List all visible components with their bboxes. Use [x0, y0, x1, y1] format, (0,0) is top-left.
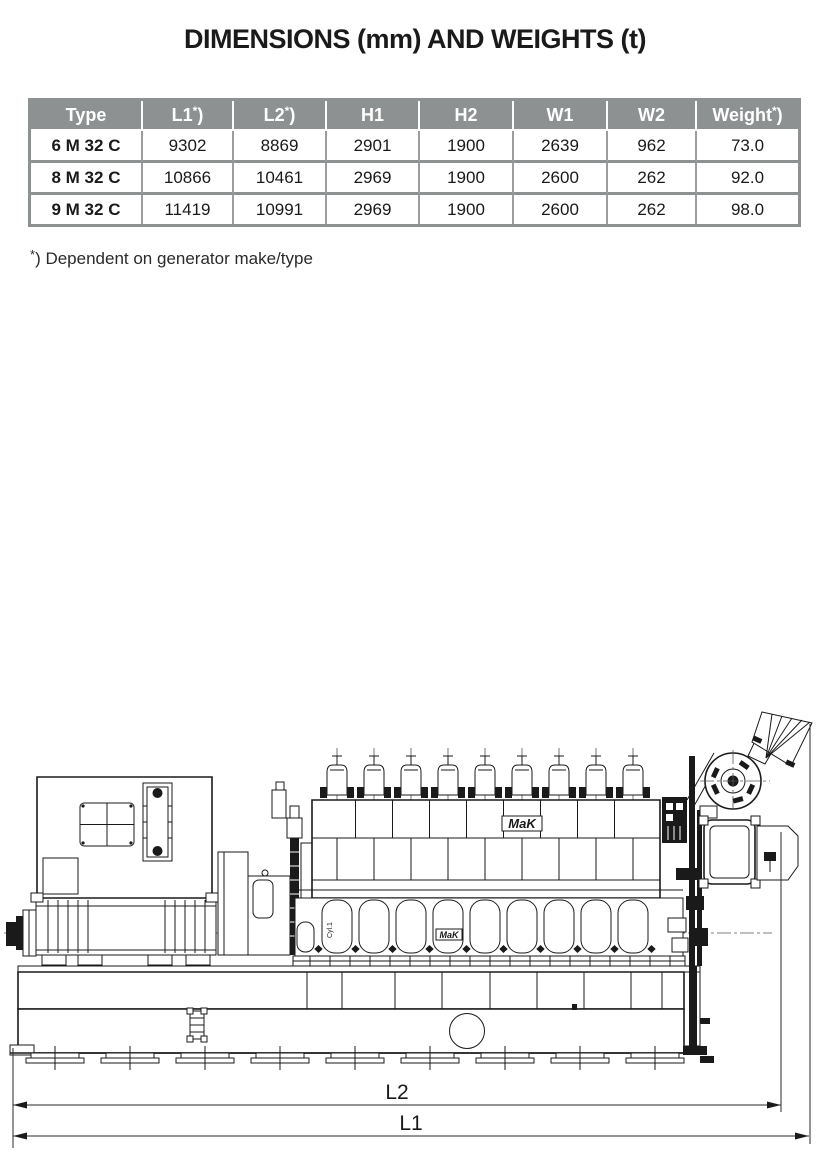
dimension-l1-label: L1	[399, 1112, 422, 1135]
cell-value: 10866	[143, 163, 234, 195]
charge-air-cooler	[699, 816, 798, 888]
header-cell-w1: W1	[514, 101, 608, 131]
table-row: 6 M 32 C 9302 8869 2901 1900 2639 962 73…	[31, 131, 798, 163]
shaft-end	[6, 922, 16, 946]
generator-louvre-panel	[80, 803, 134, 846]
header-cell-l1: L1*)	[143, 101, 234, 131]
header-cell-w2: W2	[608, 101, 697, 131]
cell-value: 10991	[234, 195, 327, 224]
base-frame	[10, 966, 700, 1070]
cell-value: 98.0	[697, 195, 798, 224]
generator-access-panel	[43, 858, 78, 894]
engine: MaK MaK Cyl.1	[293, 756, 685, 966]
cell-value: 2969	[327, 195, 420, 224]
cell-value: 73.0	[697, 131, 798, 163]
generator-body	[36, 898, 216, 955]
base-lifting-hole	[450, 1014, 485, 1049]
cell-value: 1900	[420, 163, 514, 195]
cell-engine-type: 9 M 32 C	[31, 195, 143, 224]
genset-technical-drawing: MaK MaK Cyl.1	[0, 700, 830, 1161]
dimension-l1: L1	[13, 1112, 809, 1140]
footnote: *) Dependent on generator make/type	[30, 247, 313, 269]
cell-value: 2901	[327, 131, 420, 163]
cell-value: 2600	[514, 163, 608, 195]
cell-value: 262	[608, 195, 697, 224]
cell-value: 8869	[234, 131, 327, 163]
engine-block	[312, 800, 660, 898]
header-cell-l2: L2*)	[234, 101, 327, 131]
air-intake-funnel	[748, 712, 812, 768]
table-row: 8 M 32 C 10866 10461 2969 1900 2600 262 …	[31, 163, 798, 195]
dimension-l2-label: L2	[385, 1081, 408, 1104]
cell-value: 92.0	[697, 163, 798, 195]
cell-value: 262	[608, 163, 697, 195]
cell-value: 2969	[327, 163, 420, 195]
dimension-l2: L2	[13, 1081, 781, 1109]
table-row: 9 M 32 C 11419 10991 2969 1900 2600 262 …	[31, 195, 798, 224]
header-cell-weight: Weight*)	[697, 101, 798, 131]
cell-value: 2639	[514, 131, 608, 163]
mak-logo-small: MaK	[439, 930, 460, 940]
cell-value: 962	[608, 131, 697, 163]
base-ladder	[187, 1008, 207, 1042]
header-cell-type: Type	[31, 101, 143, 131]
header-cell-h1: H1	[327, 101, 420, 131]
cylinder-1-label: Cyl.1	[327, 922, 334, 938]
table-header-row: Type L1*) L2*) H1 H2 W1 W2 Weight*)	[31, 101, 798, 131]
cell-engine-type: 6 M 32 C	[31, 131, 143, 163]
cell-value: 9302	[143, 131, 234, 163]
cell-value: 11419	[143, 195, 234, 224]
header-cell-h2: H2	[420, 101, 514, 131]
brochure-page: DIMENSIONS (mm) AND WEIGHTS (t) Type L1*…	[0, 0, 830, 1161]
mak-logo-large: MaK	[508, 816, 537, 831]
dimensions-table: Type L1*) L2*) H1 H2 W1 W2 Weight*) 6 M …	[28, 98, 801, 227]
cell-engine-type: 8 M 32 C	[31, 163, 143, 195]
cell-value: 1900	[420, 131, 514, 163]
page-title: DIMENSIONS (mm) AND WEIGHTS (t)	[0, 24, 830, 55]
cell-value: 1900	[420, 195, 514, 224]
cell-value: 10461	[234, 163, 327, 195]
generator-hatch	[143, 783, 172, 861]
cell-value: 2600	[514, 195, 608, 224]
generator	[6, 777, 218, 965]
